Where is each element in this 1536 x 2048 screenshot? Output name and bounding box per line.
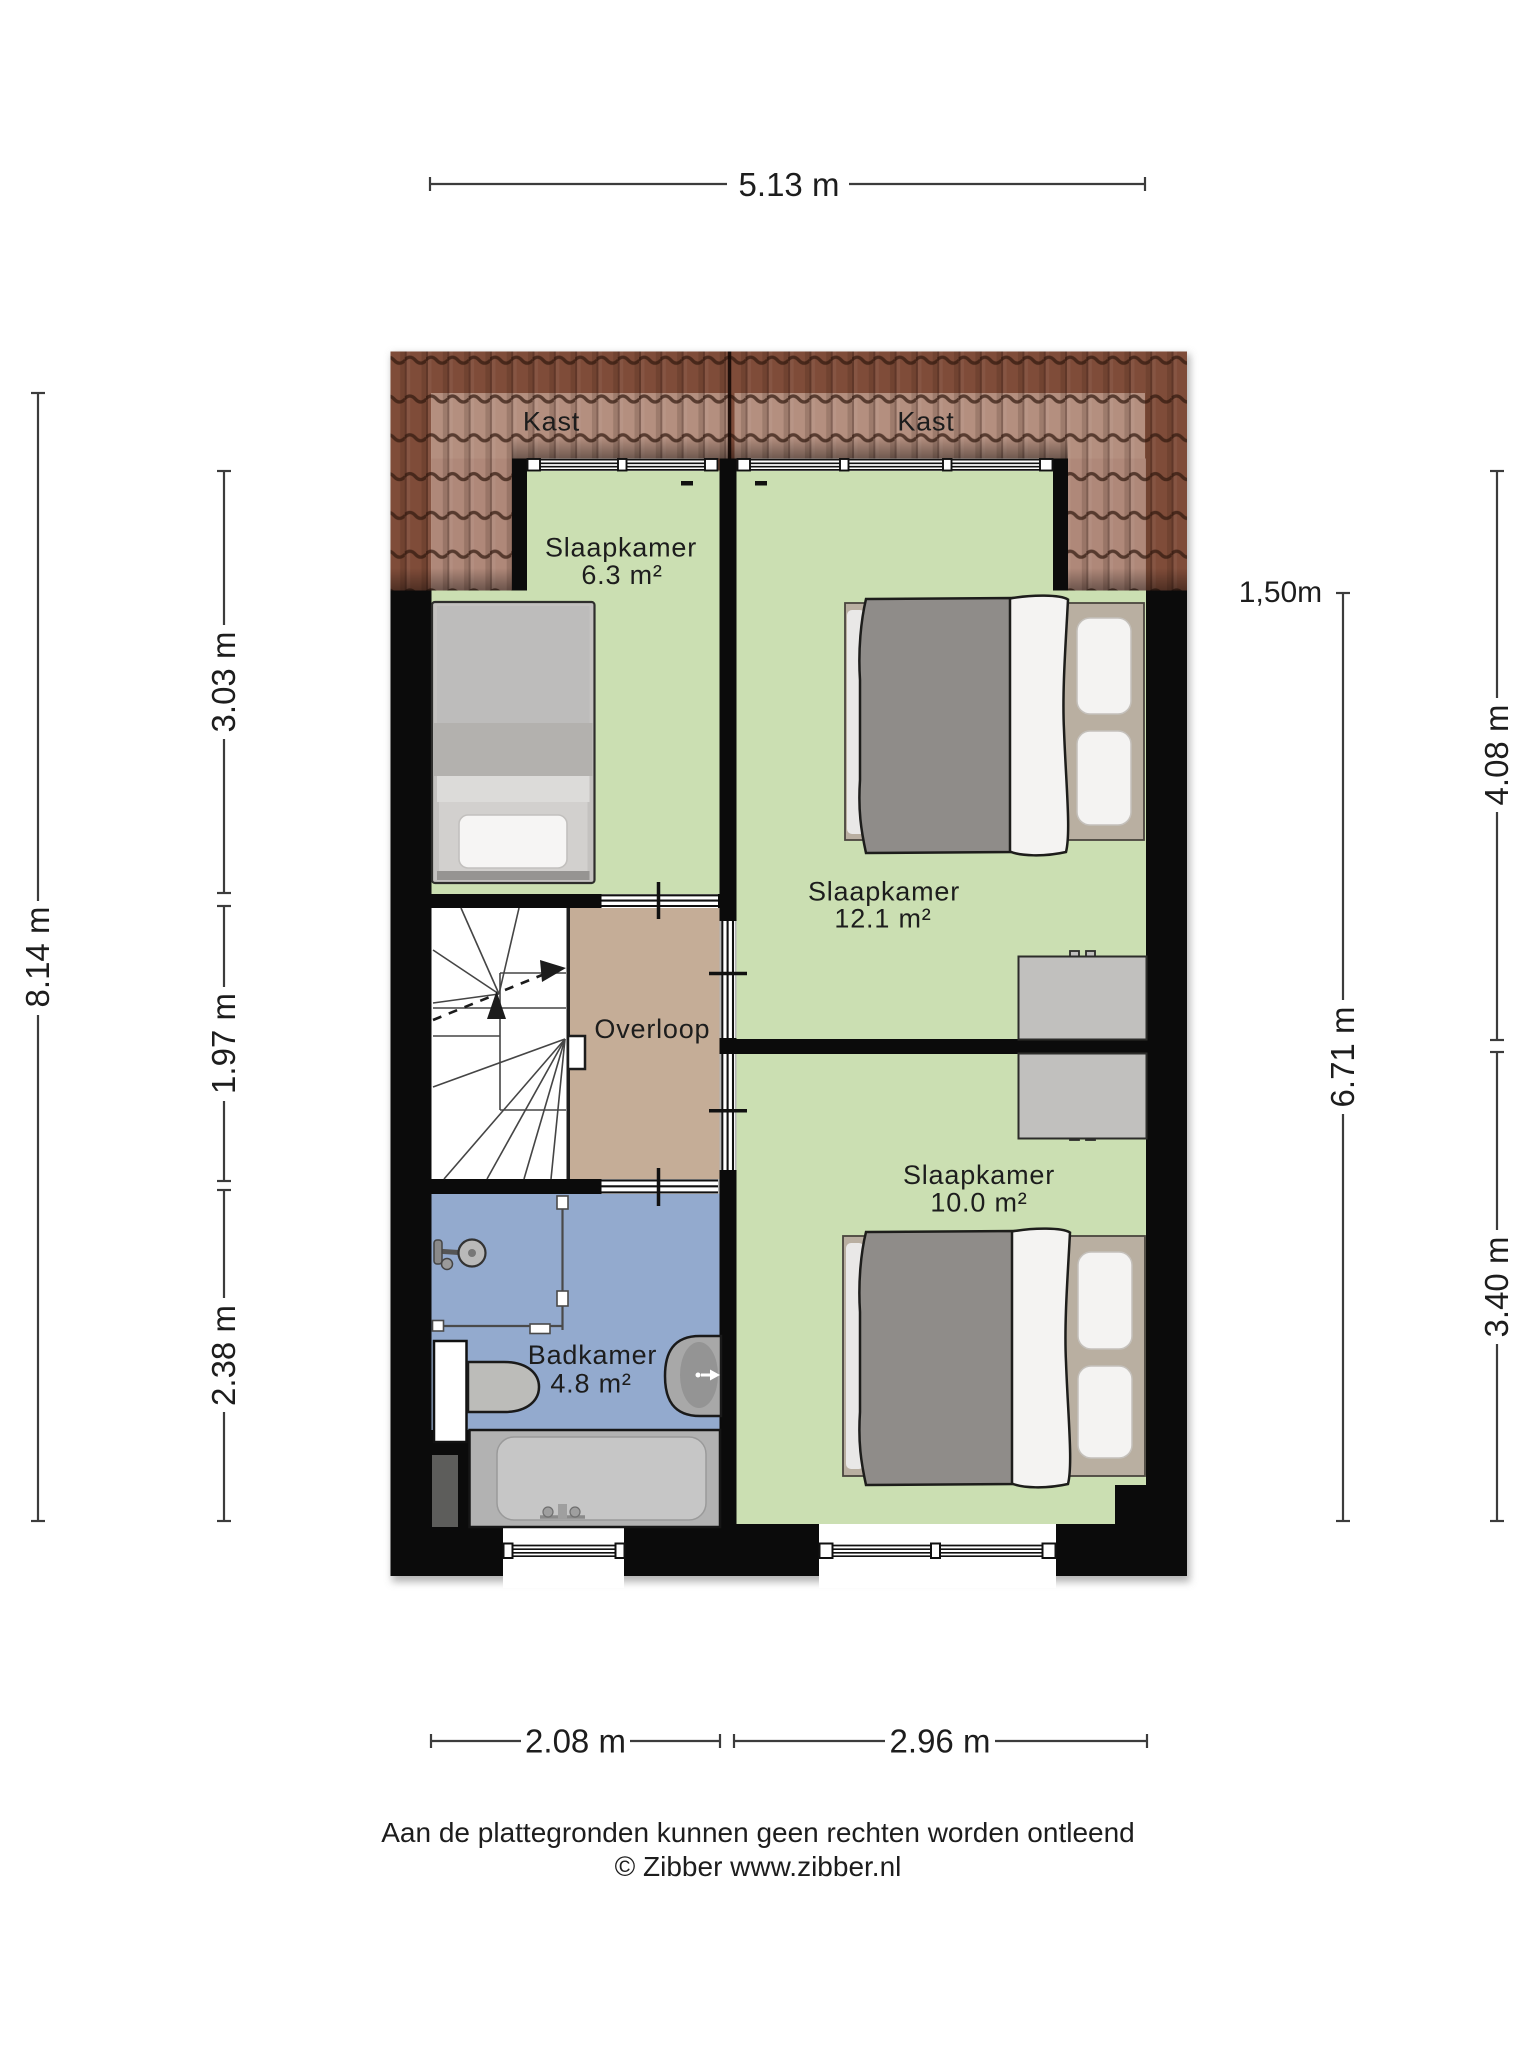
svg-text:1,50m: 1,50m xyxy=(1239,576,1322,609)
svg-text:Slaapkamer: Slaapkamer xyxy=(903,1160,1055,1190)
svg-text:Slaapkamer: Slaapkamer xyxy=(808,876,960,906)
svg-text:3.40 m: 3.40 m xyxy=(1478,1237,1515,1338)
svg-text:2.38 m: 2.38 m xyxy=(205,1305,242,1406)
svg-text:© Zibber www.zibber.nl: © Zibber www.zibber.nl xyxy=(615,1851,902,1882)
svg-text:Aan de plattegronden kunnen ge: Aan de plattegronden kunnen geen rechten… xyxy=(381,1817,1134,1848)
svg-text:2.96 m: 2.96 m xyxy=(890,1723,991,1760)
svg-text:5.13 m: 5.13 m xyxy=(739,166,840,203)
svg-text:8.14 m: 8.14 m xyxy=(19,907,56,1008)
svg-text:3.03 m: 3.03 m xyxy=(205,632,242,733)
svg-text:Overloop: Overloop xyxy=(594,1014,710,1044)
svg-text:Kast: Kast xyxy=(523,407,580,437)
svg-text:Badkamer: Badkamer xyxy=(528,1340,657,1370)
svg-text:Slaapkamer: Slaapkamer xyxy=(545,533,697,563)
svg-text:Kast: Kast xyxy=(897,407,954,437)
svg-text:2.08 m: 2.08 m xyxy=(525,1723,626,1760)
svg-text:1.97 m: 1.97 m xyxy=(205,993,242,1094)
svg-text:10.0 m²: 10.0 m² xyxy=(930,1188,1027,1218)
svg-text:4.08 m: 4.08 m xyxy=(1478,705,1515,806)
svg-text:12.1 m²: 12.1 m² xyxy=(834,904,931,934)
svg-text:4.8 m²: 4.8 m² xyxy=(550,1369,631,1399)
svg-text:6.3 m²: 6.3 m² xyxy=(581,560,662,590)
svg-text:6.71 m: 6.71 m xyxy=(1324,1007,1361,1108)
